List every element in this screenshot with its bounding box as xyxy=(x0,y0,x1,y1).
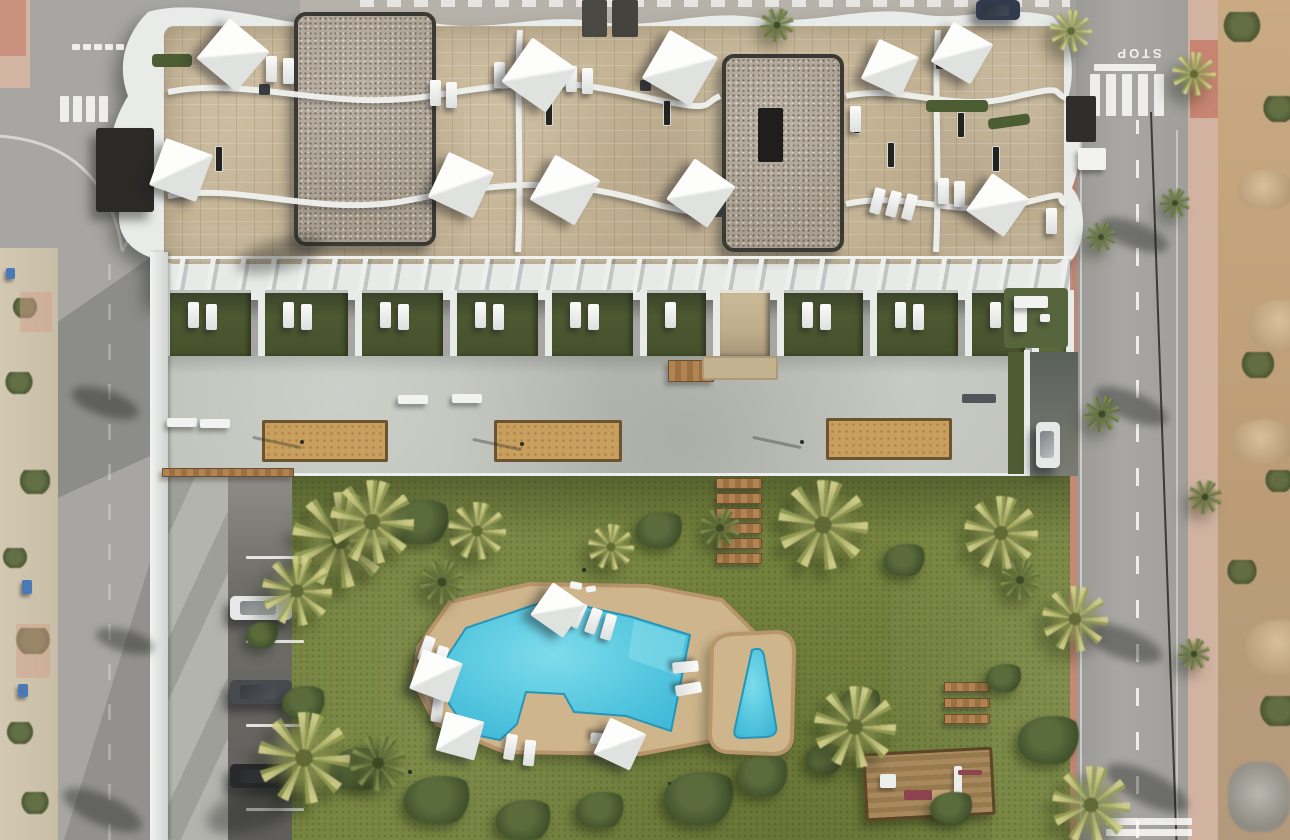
garden-light xyxy=(582,568,586,572)
stone-landing xyxy=(702,356,778,380)
garden-bush xyxy=(496,800,556,840)
lawn-deck-slat xyxy=(716,478,762,489)
dirt-rock xyxy=(1245,620,1290,676)
dirt-scrub xyxy=(1262,96,1290,122)
recycle-bin xyxy=(6,268,15,279)
palm-tree xyxy=(1042,586,1108,652)
garden-bush xyxy=(986,664,1024,692)
sand-planter xyxy=(494,420,622,462)
roof-stack xyxy=(612,0,638,37)
street-palm xyxy=(1172,52,1216,96)
yield-dash xyxy=(94,44,102,50)
deck-lamp xyxy=(520,442,524,446)
tree-shadow xyxy=(93,623,157,660)
roof-stack xyxy=(582,0,607,37)
pool-parasol xyxy=(593,717,646,770)
street-tree xyxy=(1084,396,1120,432)
dirt-scrub xyxy=(1222,12,1262,42)
towel xyxy=(569,581,582,590)
sand-bush xyxy=(4,372,34,394)
roof-lounger xyxy=(1046,208,1057,234)
sand-bush xyxy=(2,548,28,568)
roof-window-slot xyxy=(215,146,223,172)
palm-tree xyxy=(262,556,332,626)
tree-shadow xyxy=(68,380,143,426)
pool-lounger xyxy=(600,613,618,641)
pool-lounger xyxy=(523,739,537,766)
garden-bush xyxy=(404,776,476,824)
street-tree xyxy=(1178,638,1210,670)
crosswalk-topleft-stripe xyxy=(60,96,69,122)
garden-bush xyxy=(884,544,928,576)
recycle-bin xyxy=(18,684,28,697)
dirt-rock xyxy=(1248,300,1290,352)
roof-lounger xyxy=(446,82,457,108)
palm-tree xyxy=(588,524,634,570)
roof-lounger xyxy=(901,193,918,221)
roof-window-slot xyxy=(992,146,1000,172)
garden-light xyxy=(408,770,412,774)
yield-dash xyxy=(116,44,124,50)
crosswalk-topright-stripe xyxy=(1154,74,1164,116)
towel xyxy=(586,585,597,592)
palm-tree xyxy=(814,686,896,768)
palm-tree xyxy=(330,480,414,564)
gym-bar xyxy=(958,770,982,775)
wood-edge-strip xyxy=(162,468,294,477)
parked-car-top xyxy=(976,0,1020,20)
crosswalk-topleft-stripe xyxy=(73,96,82,122)
roof-parasol xyxy=(666,158,736,228)
lamp-shadow xyxy=(752,436,802,449)
yield-dash xyxy=(83,44,91,50)
building-hedge xyxy=(152,54,192,67)
deck-bench xyxy=(452,394,482,403)
roof-lounger xyxy=(885,190,902,218)
roof-window-slot xyxy=(663,100,671,126)
yield-dash xyxy=(72,44,80,50)
garden-bush xyxy=(1018,716,1084,764)
garden-bush xyxy=(246,622,280,648)
pool-parasol xyxy=(530,582,586,638)
rooftop-sofa xyxy=(1014,296,1048,308)
roof-box xyxy=(1078,148,1106,170)
roof-parasol xyxy=(196,18,269,91)
roof-lounger xyxy=(283,58,294,84)
palm-tree xyxy=(778,480,868,570)
corner-palm xyxy=(1050,10,1092,52)
yield-dash xyxy=(105,44,113,50)
gym-bench-slat xyxy=(944,714,990,724)
palm-tree xyxy=(964,496,1038,570)
dirt-scrub xyxy=(1226,560,1258,584)
garden-bush xyxy=(636,512,686,548)
palm-tree xyxy=(350,735,406,791)
roof-lounger xyxy=(850,106,861,132)
garden-bush xyxy=(664,772,740,824)
roof-lounger xyxy=(266,56,277,82)
roof-parasol xyxy=(428,152,494,218)
driveway-car xyxy=(1036,422,1060,468)
dirt-rock xyxy=(1238,170,1290,210)
roof-table xyxy=(259,84,270,95)
lawn-deck-slat xyxy=(716,493,762,504)
palm-tree xyxy=(700,508,740,548)
deck-lamp xyxy=(800,440,804,444)
dirt-scrub xyxy=(1240,352,1276,378)
deck-bench xyxy=(167,418,197,427)
roof-parasol xyxy=(501,37,576,112)
crosswalk-topright-stripe xyxy=(1106,74,1116,116)
garden-bush xyxy=(576,792,628,828)
crosswalk-topleft-stripe xyxy=(99,96,108,122)
recycle-bin xyxy=(22,580,32,594)
garden-bush xyxy=(930,792,976,824)
sand-bush xyxy=(6,722,34,744)
sand-bush xyxy=(18,470,52,494)
aerial-scene: STOP xyxy=(0,0,1290,840)
roof-parasol xyxy=(149,138,213,202)
roof-lounger xyxy=(582,68,593,94)
palm-tree xyxy=(1000,560,1040,600)
roof-lounger xyxy=(430,80,441,106)
street-tree xyxy=(1086,222,1116,252)
lawn-deck-slat xyxy=(716,553,762,564)
sand-bush xyxy=(20,792,50,814)
roof-parasol xyxy=(642,30,718,106)
roof-lounger xyxy=(954,181,965,207)
roof-window-slot xyxy=(957,112,965,138)
crosswalk-topleft-stripe xyxy=(86,96,95,122)
dirt-scrub xyxy=(1258,696,1290,726)
pool-parasol xyxy=(436,712,485,761)
crosswalk-topright-stripe xyxy=(1122,74,1132,116)
gym-bench-slat xyxy=(944,682,990,692)
pool-lounger xyxy=(675,681,703,696)
garden-bush xyxy=(736,756,792,796)
gym-bench-slat xyxy=(944,698,990,708)
deck-bench xyxy=(398,395,428,404)
palm-tree xyxy=(448,502,506,560)
building-hedge xyxy=(926,100,988,112)
roof-parasol xyxy=(966,173,1030,237)
sidewalk-palm xyxy=(760,8,794,42)
pink-seg xyxy=(20,292,52,332)
gym-machine-white xyxy=(880,774,896,788)
crosswalk-topright-stripe xyxy=(1138,74,1148,116)
scene-items-layer xyxy=(0,0,1290,840)
roof-lounger xyxy=(494,62,505,88)
deck-bench-dark xyxy=(962,394,996,403)
rubble-pile xyxy=(1228,762,1290,832)
palm-tree xyxy=(258,712,350,804)
rooftop-sofa-table xyxy=(1040,314,1050,322)
gym-machine-red xyxy=(904,790,932,800)
dirt-scrub xyxy=(1264,470,1290,492)
deck-bench xyxy=(200,419,230,428)
stop-line xyxy=(1094,64,1156,71)
street-tree xyxy=(1160,188,1190,218)
roof-lounger xyxy=(938,178,949,204)
roof-lounger xyxy=(869,187,886,215)
sand-planter xyxy=(826,418,952,460)
dirt-rock xyxy=(1232,420,1290,464)
pink-seg xyxy=(16,624,50,678)
roof-stack xyxy=(758,108,783,162)
deck-lamp xyxy=(300,440,304,444)
palm-tree xyxy=(420,560,464,604)
roof-parasol xyxy=(861,39,919,97)
palm-shadow xyxy=(233,229,328,281)
pool-lounger xyxy=(672,660,699,673)
roof-window-slot xyxy=(887,142,895,168)
building-hedge xyxy=(987,113,1030,130)
pool-lounger xyxy=(503,733,518,761)
roof-stack xyxy=(1066,96,1096,142)
tree-shadow xyxy=(58,779,148,840)
roof-parasol xyxy=(931,22,994,85)
street-tree xyxy=(1188,480,1222,514)
palm-tree xyxy=(1052,766,1130,840)
pool-lounger xyxy=(584,607,603,635)
roof-parasol xyxy=(529,154,600,225)
